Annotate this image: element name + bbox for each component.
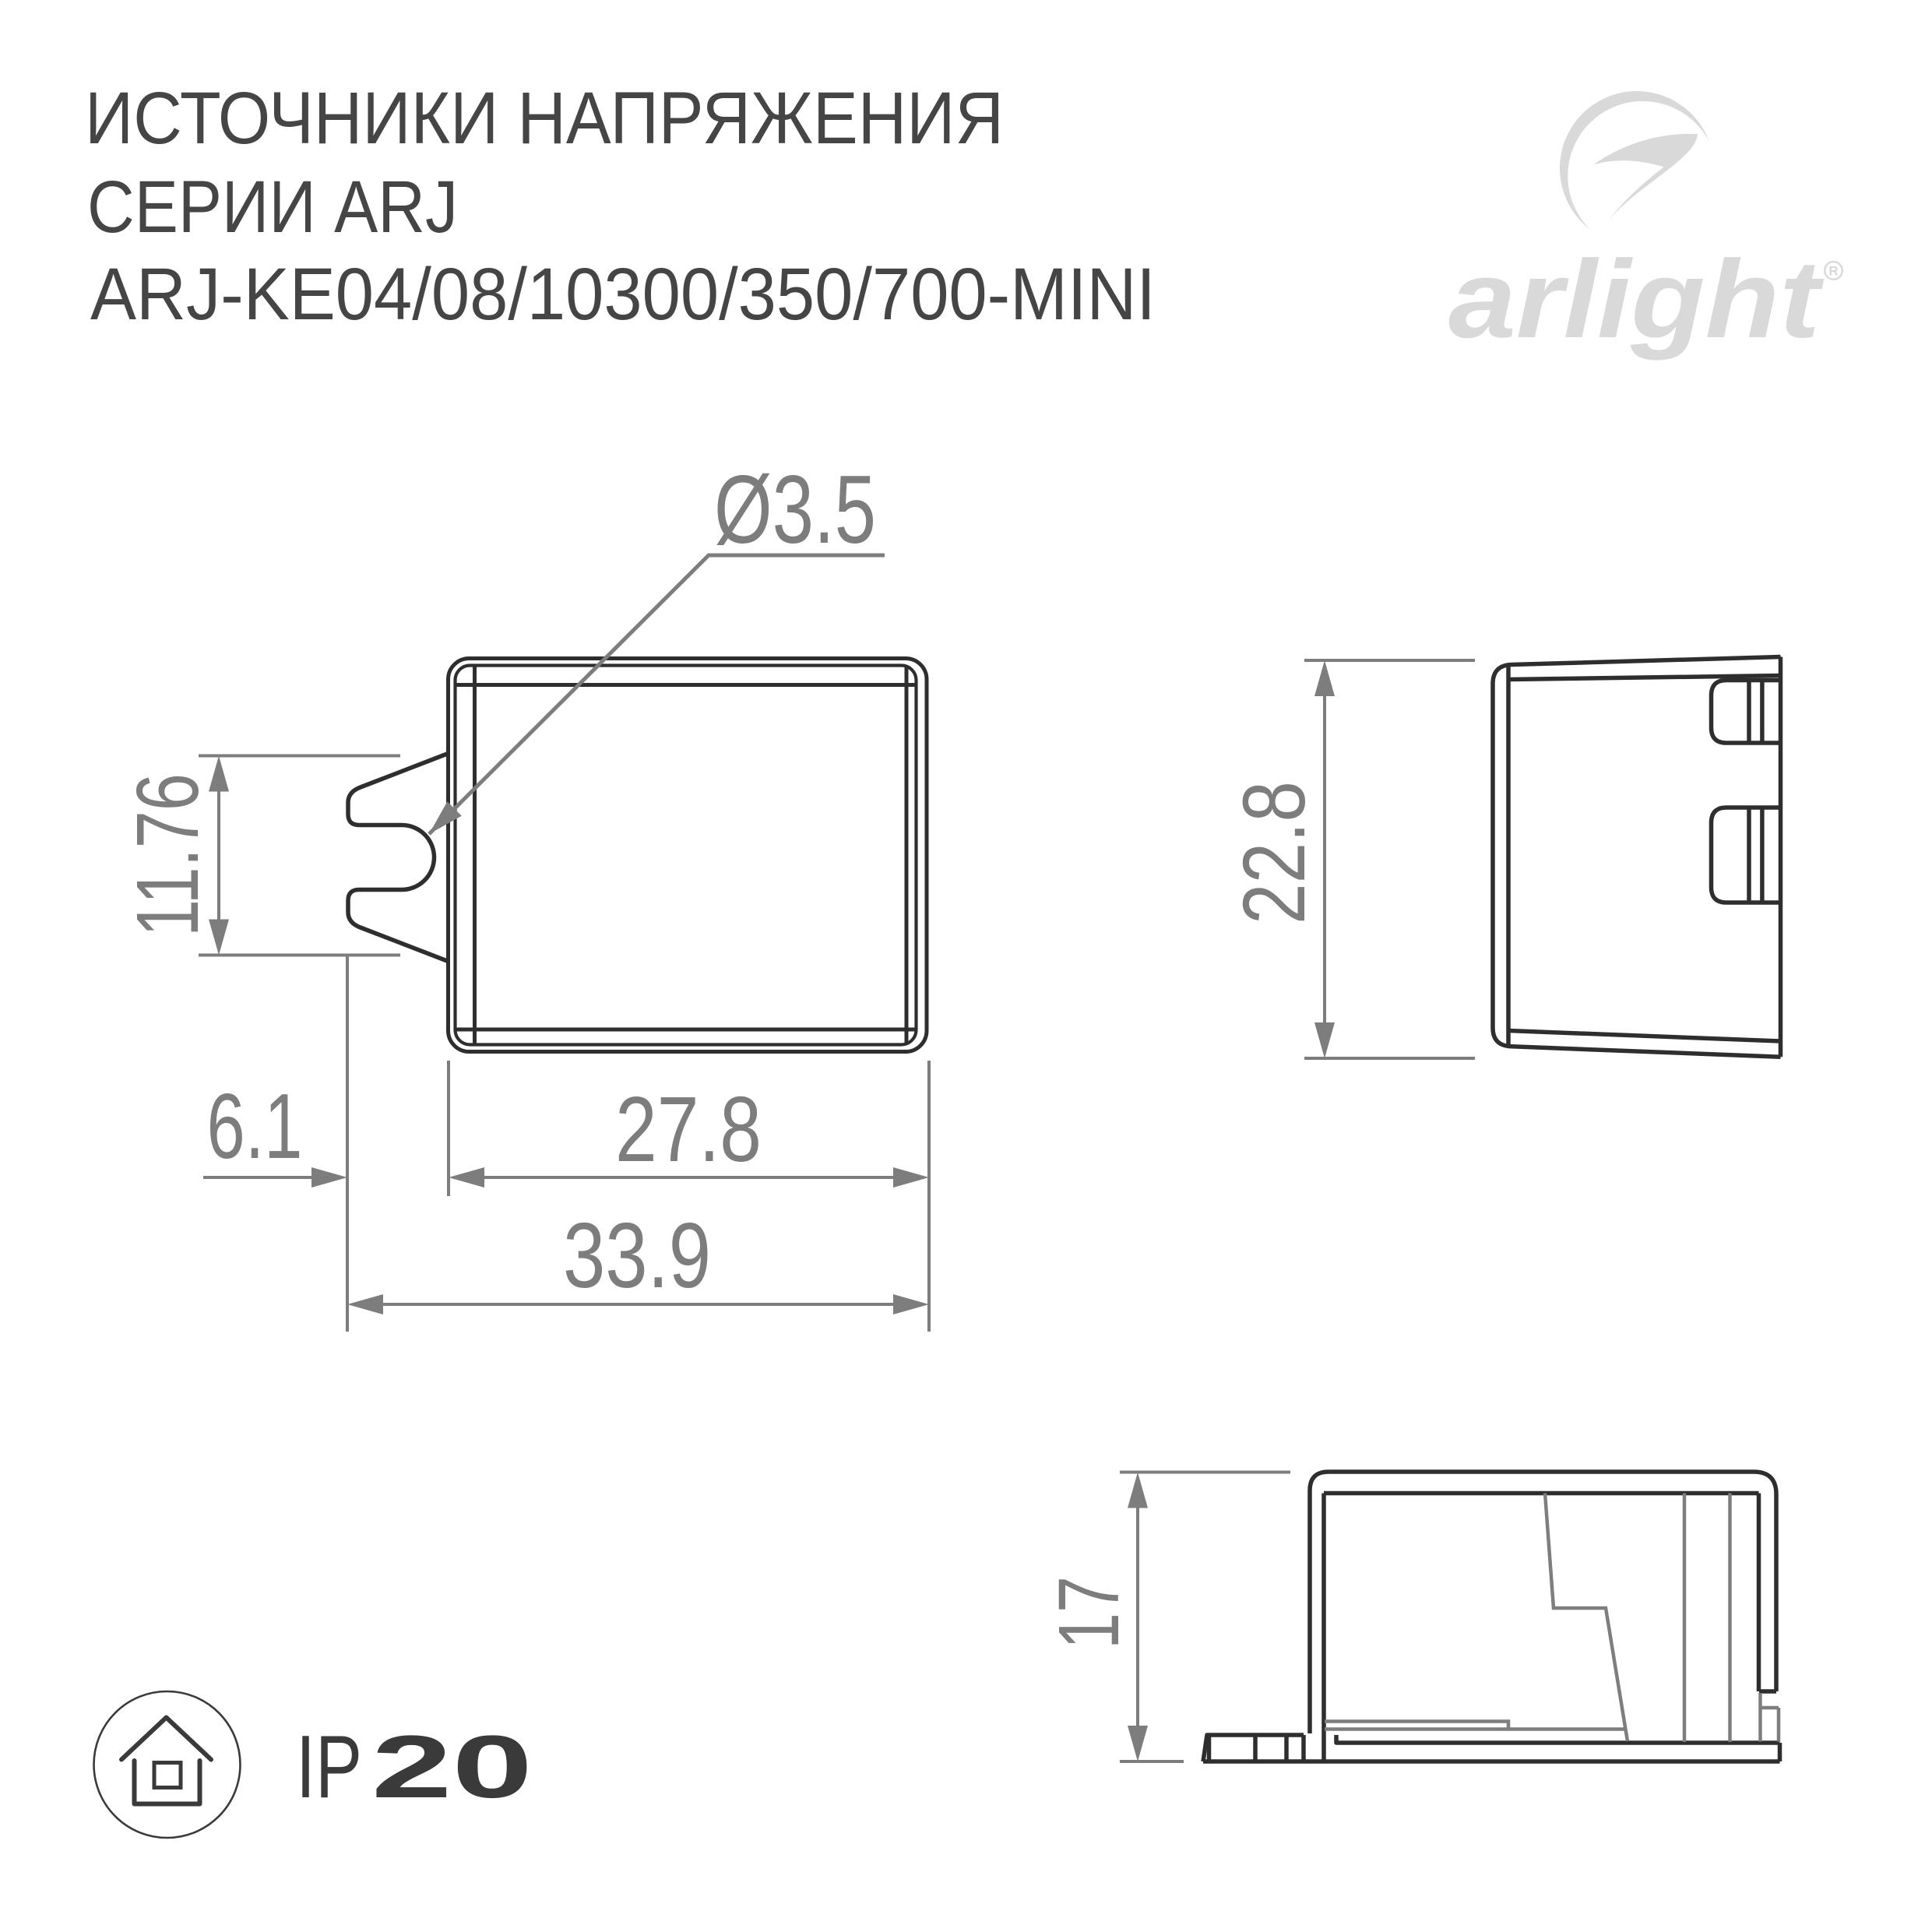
svg-text:33.9: 33.9 <box>563 1204 711 1307</box>
svg-text:arlight: arlight <box>1448 238 1825 361</box>
svg-text:20: 20 <box>371 1718 533 1817</box>
svg-text:11.76: 11.76 <box>118 773 216 937</box>
svg-text:IP: IP <box>296 1718 362 1817</box>
svg-text:Ø3.5: Ø3.5 <box>714 456 876 564</box>
svg-text:22.8: 22.8 <box>1225 781 1323 924</box>
svg-text:17: 17 <box>1041 1576 1137 1649</box>
svg-text:6.1: 6.1 <box>207 1075 303 1178</box>
svg-text:R: R <box>1828 264 1838 279</box>
svg-text:27.8: 27.8 <box>615 1078 762 1181</box>
svg-text:ARJ-KE04/08/10300/350/700-MINI: ARJ-KE04/08/10300/350/700-MINI <box>90 253 1156 336</box>
svg-text:СЕРИИ ARJ: СЕРИИ ARJ <box>87 166 458 248</box>
svg-text:ИСТОЧНИКИ НАПРЯЖЕНИЯ: ИСТОЧНИКИ НАПРЯЖЕНИЯ <box>85 77 1004 160</box>
